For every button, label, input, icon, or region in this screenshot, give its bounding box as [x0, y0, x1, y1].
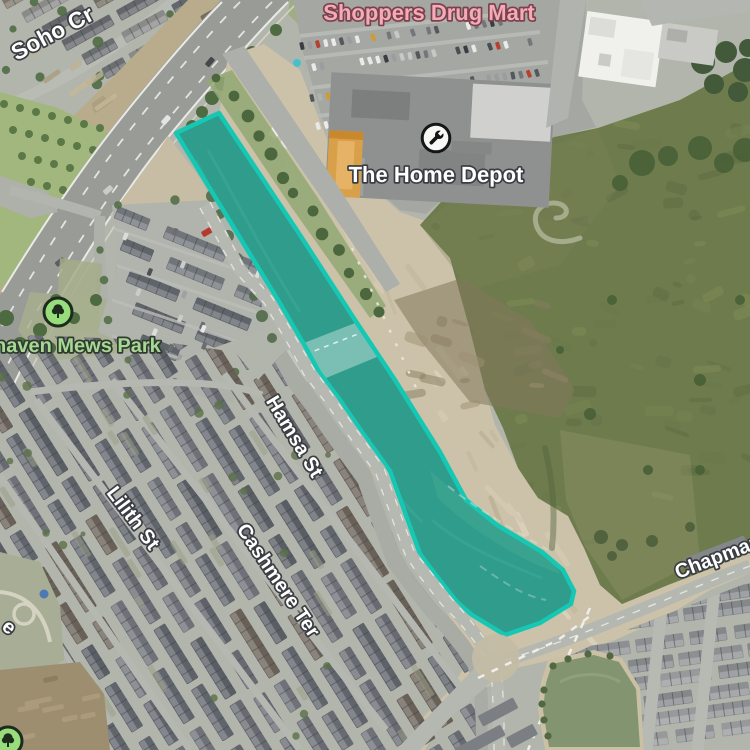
svg-text:haven Mews Park: haven Mews Park	[0, 335, 162, 357]
svg-text:The Home Depot: The Home Depot	[349, 162, 524, 187]
svg-text:Shoppers Drug Mart: Shoppers Drug Mart	[323, 0, 535, 25]
